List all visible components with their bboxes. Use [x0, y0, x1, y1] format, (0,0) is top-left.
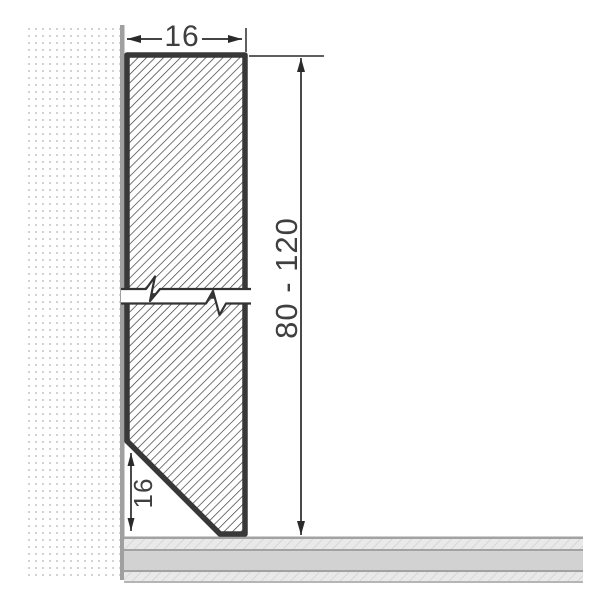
- dim-top-arrow-right: [228, 35, 242, 43]
- dimension-label-height-range: 80 - 120: [269, 217, 304, 339]
- profile-cross-section-drawing: 16 80 - 120 16: [0, 0, 604, 604]
- profile-upper-section: [127, 55, 245, 296]
- floor-border-bottom: [124, 581, 583, 583]
- wall: [24, 25, 125, 580]
- floor-border-top: [124, 537, 583, 540]
- dim-chamfer-arrow-top: [128, 453, 135, 466]
- floor-band-upper-hatch: [124, 539, 583, 549]
- floor-band-lower-hatch: [124, 572, 583, 581]
- dim-height-arrow-bottom: [297, 521, 305, 535]
- dimension-label-bottom-chamfer: 16: [128, 478, 158, 509]
- floor: [124, 537, 583, 584]
- dim-chamfer-arrow-bottom: [128, 518, 135, 531]
- floor-band-middle: [124, 551, 583, 570]
- floor-border-mid2: [124, 570, 583, 572]
- dim-top-arrow-left: [127, 35, 141, 43]
- wall-stipple-pattern: [24, 25, 120, 580]
- dimension-label-top-width: 16: [164, 20, 199, 53]
- drawing-canvas: 16 80 - 120 16: [0, 0, 604, 604]
- dim-height-arrow-top: [297, 58, 305, 72]
- floor-border-mid1: [124, 549, 583, 551]
